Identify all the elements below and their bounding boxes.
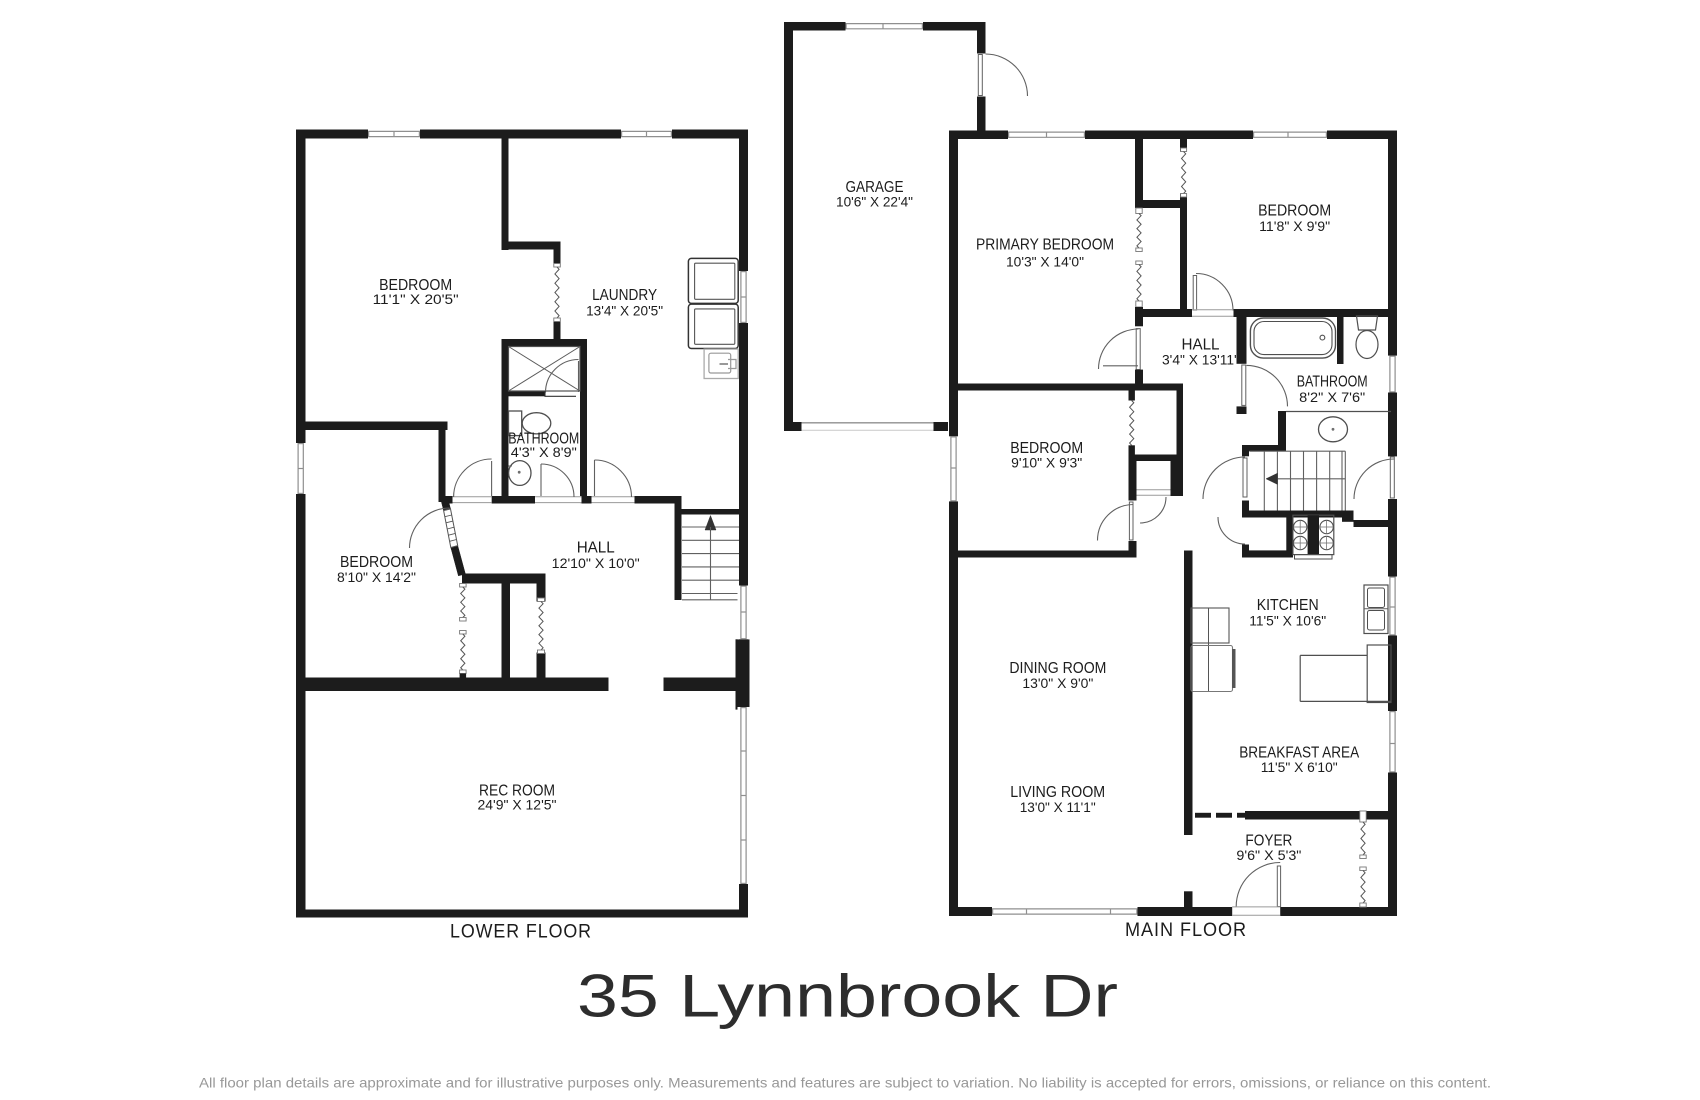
svg-text:12'10" X 10'0": 12'10" X 10'0"	[552, 556, 640, 571]
svg-text:8'10" X 14'2": 8'10" X 14'2"	[337, 570, 416, 585]
svg-text:24'9" X 12'5": 24'9" X 12'5"	[478, 798, 557, 813]
svg-text:HALL: HALL	[1182, 336, 1220, 353]
svg-text:LOWER FLOOR: LOWER FLOOR	[450, 921, 592, 943]
svg-text:BREAKFAST AREA: BREAKFAST AREA	[1239, 744, 1360, 761]
svg-text:LAUNDRY: LAUNDRY	[592, 287, 658, 304]
svg-text:8'2" X 7'6": 8'2" X 7'6"	[1299, 390, 1365, 405]
svg-text:PRIMARY BEDROOM: PRIMARY BEDROOM	[976, 237, 1114, 254]
svg-text:BEDROOM: BEDROOM	[1258, 203, 1331, 220]
svg-text:4'3" X 8'9": 4'3" X 8'9"	[511, 445, 577, 460]
svg-text:BEDROOM: BEDROOM	[340, 554, 413, 571]
svg-text:BATHROOM: BATHROOM	[1297, 374, 1368, 391]
svg-text:DINING ROOM: DINING ROOM	[1009, 660, 1106, 677]
svg-text:KITCHEN: KITCHEN	[1257, 597, 1319, 614]
svg-text:All floor plan details are app: All floor plan details are approximate a…	[199, 1075, 1491, 1091]
svg-text:35 Lynnbrook Dr: 35 Lynnbrook Dr	[577, 963, 1118, 1030]
svg-text:9'10" X 9'3": 9'10" X 9'3"	[1011, 455, 1082, 470]
svg-text:HALL: HALL	[577, 540, 615, 557]
svg-text:11'5" X 10'6": 11'5" X 10'6"	[1249, 614, 1326, 629]
svg-text:11'5" X 6'10": 11'5" X 6'10"	[1261, 760, 1338, 775]
svg-text:LIVING ROOM: LIVING ROOM	[1010, 784, 1105, 801]
svg-text:13'4" X 20'5": 13'4" X 20'5"	[586, 304, 663, 319]
svg-text:13'0" X 9'0": 13'0" X 9'0"	[1022, 676, 1093, 691]
svg-text:MAIN FLOOR: MAIN FLOOR	[1125, 919, 1247, 941]
svg-text:13'0" X 11'1": 13'0" X 11'1"	[1020, 800, 1096, 815]
svg-text:10'6" X 22'4": 10'6" X 22'4"	[836, 194, 913, 209]
svg-text:11'8" X 9'9": 11'8" X 9'9"	[1259, 219, 1330, 234]
svg-text:10'3" X 14'0": 10'3" X 14'0"	[1006, 255, 1084, 270]
svg-text:9'6" X 5'3": 9'6" X 5'3"	[1236, 848, 1301, 863]
svg-text:3'4" X 13'11": 3'4" X 13'11"	[1162, 353, 1239, 368]
svg-text:11'1" X 20'5": 11'1" X 20'5"	[373, 292, 459, 307]
